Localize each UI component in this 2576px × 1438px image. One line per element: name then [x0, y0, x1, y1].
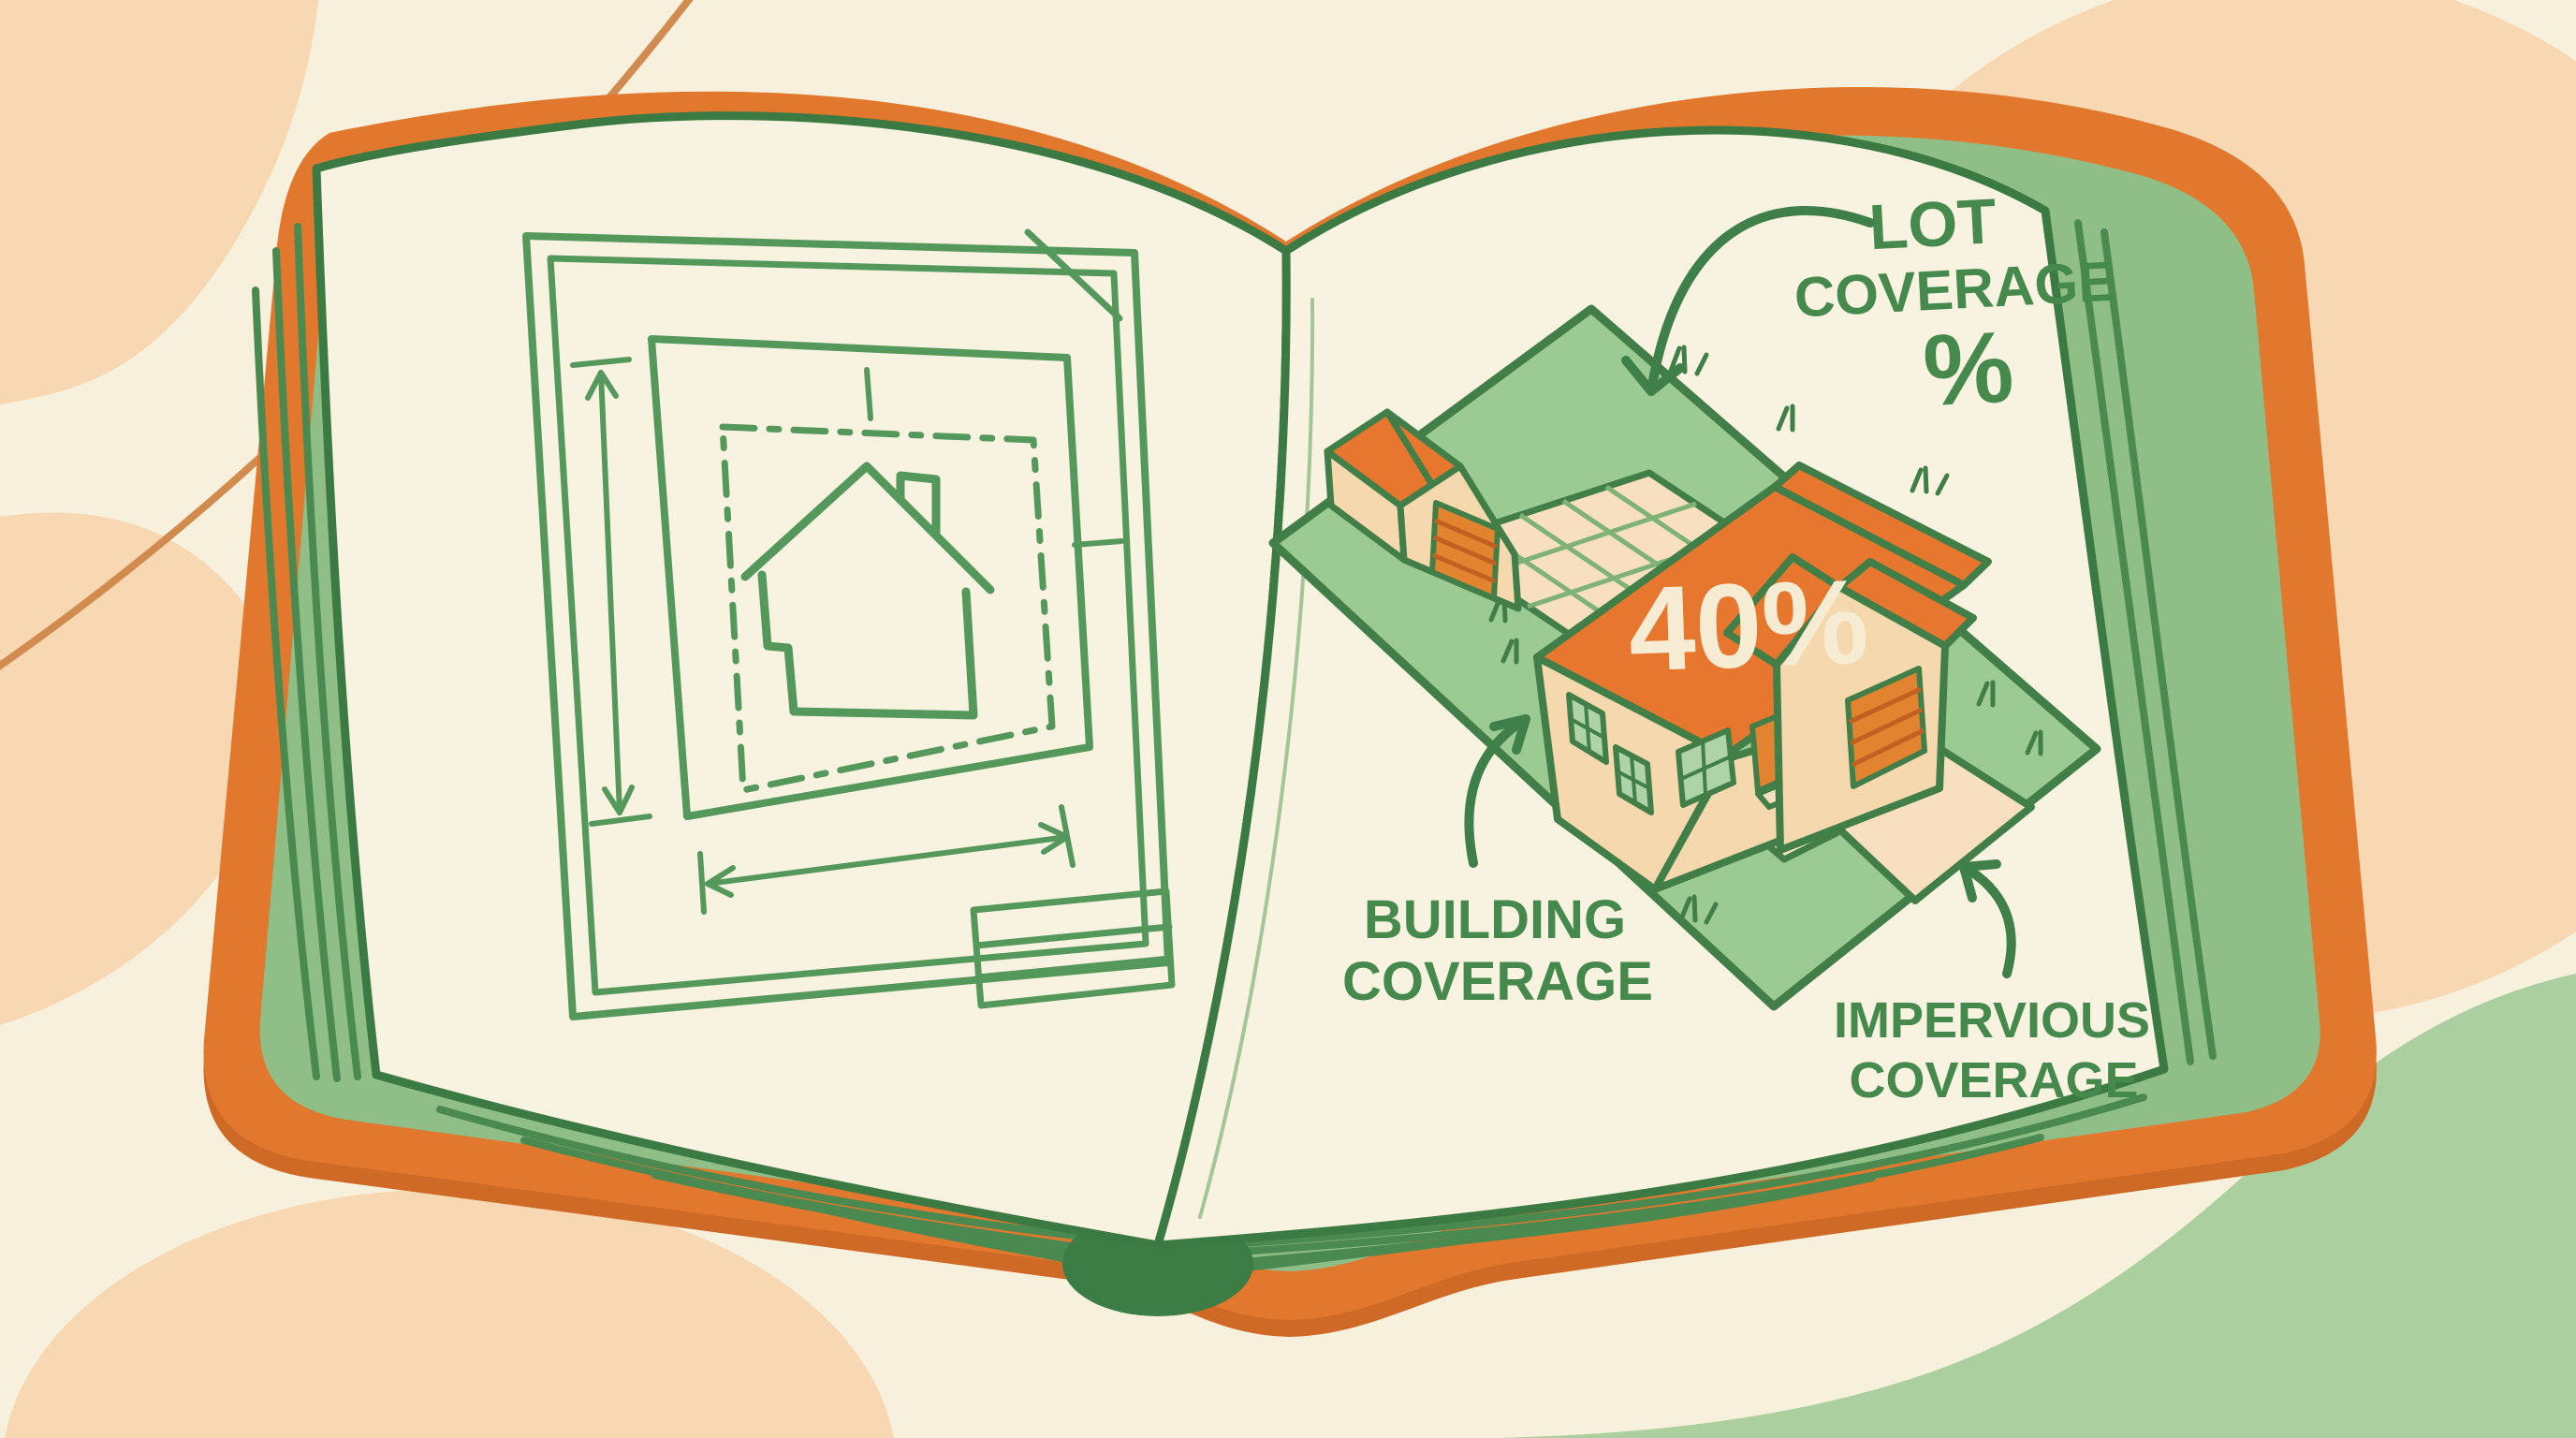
left-page	[316, 116, 1286, 1245]
impervious-coverage-line1: IMPERVIOUS	[1834, 992, 2150, 1049]
building-coverage-line1: BUILDING	[1364, 889, 1626, 950]
building-coverage-label: BUILDING COVERAGE	[1342, 889, 1653, 1012]
lot-coverage-percent-symbol: %	[1921, 309, 2016, 427]
impervious-coverage-line2: COVERAGE	[1849, 1052, 2138, 1108]
roof-coverage-value: 40%	[1626, 555, 1870, 697]
zoning-coverage-illustration: 40% LOT COVERAGE % BUILDING COVERAGE IMP…	[0, 0, 2576, 1438]
lot-coverage-line1: LOT	[1867, 185, 1998, 263]
illustration-canvas: 40% LOT COVERAGE % BUILDING COVERAGE IMP…	[0, 0, 2576, 1438]
building-coverage-line2: COVERAGE	[1342, 951, 1653, 1012]
